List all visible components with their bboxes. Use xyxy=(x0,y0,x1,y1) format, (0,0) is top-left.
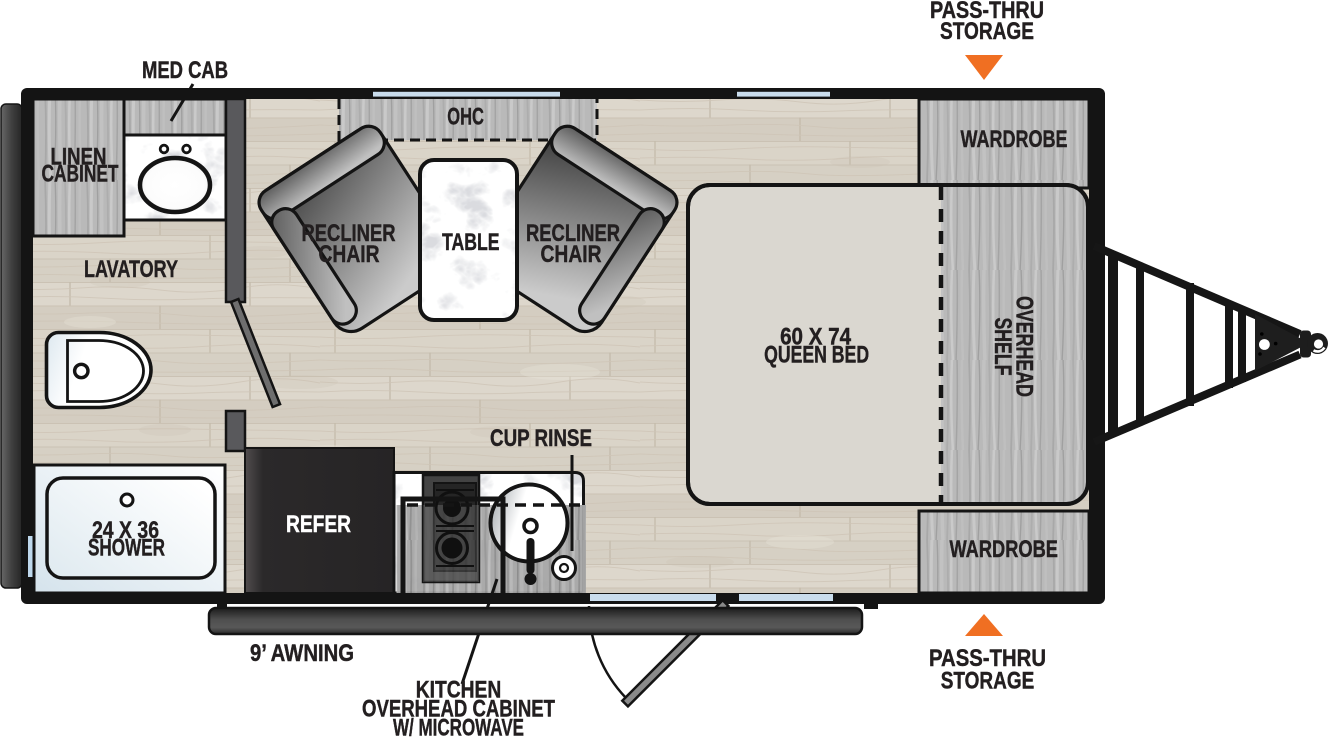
svg-text:9’ AWNING: 9’ AWNING xyxy=(250,640,354,667)
svg-text:STORAGE: STORAGE xyxy=(941,668,1035,695)
svg-text:TABLE: TABLE xyxy=(442,229,500,256)
svg-text:WARDROBE: WARDROBE xyxy=(961,126,1068,153)
svg-text:CABINET: CABINET xyxy=(42,161,119,188)
svg-text:W/ MICROWAVE: W/ MICROWAVE xyxy=(393,715,524,742)
svg-text:STORAGE: STORAGE xyxy=(940,18,1034,45)
svg-text:QUEEN BED: QUEEN BED xyxy=(764,342,869,369)
svg-text:REFER: REFER xyxy=(286,511,351,538)
svg-text:OHC: OHC xyxy=(447,104,484,131)
svg-text:SHELF: SHELF xyxy=(989,318,1016,376)
svg-text:CUP RINSE: CUP RINSE xyxy=(490,425,592,452)
svg-text:CHAIR: CHAIR xyxy=(319,241,380,268)
svg-text:LAVATORY: LAVATORY xyxy=(84,256,178,283)
svg-text:SHOWER: SHOWER xyxy=(88,535,165,562)
svg-text:CHAIR: CHAIR xyxy=(541,241,602,268)
svg-text:MED CAB: MED CAB xyxy=(142,57,228,84)
svg-text:WARDROBE: WARDROBE xyxy=(949,536,1058,563)
